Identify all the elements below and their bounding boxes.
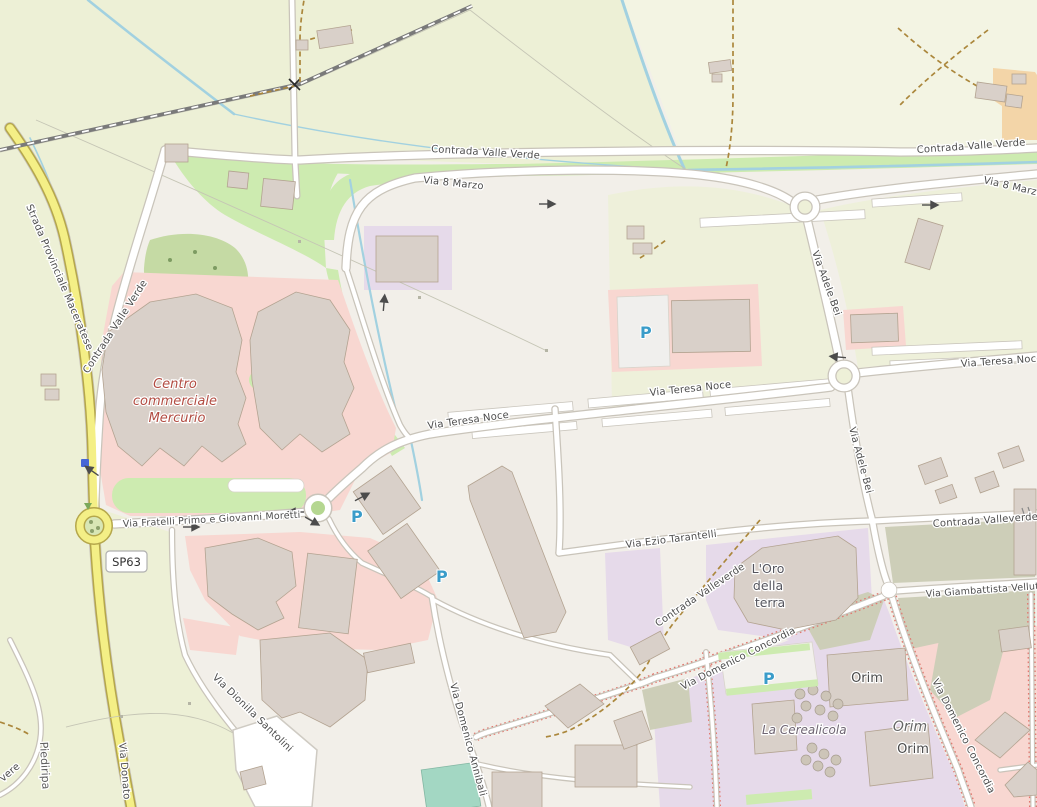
parking-icon: P [640,323,652,342]
place-label-piediripa: Piediripa [37,741,52,789]
area-label-loro-della-terra: L'Oro della terra [752,561,789,610]
parking-icon: P [763,669,775,688]
parking-icon: P [351,507,363,526]
area-label-orim-1: Orim [851,671,883,686]
loro-line-2: della [753,578,783,593]
area-label-orim-3: Orim [897,742,929,757]
area-label-la-cerealicola: La Cerealicola [762,723,847,737]
loro-line-3: terra [755,595,785,610]
mercurio-line-3: Mercurio [149,411,206,426]
road-ref-badge: SP63 [106,551,147,572]
mercurio-line-1: Centro [153,377,197,392]
loro-line-1: L'Oro [752,561,785,576]
road-ref-sp63: SP63 [112,555,141,569]
mercurio-line-2: commerciale [133,394,217,409]
map-viewport[interactable]: Strada Provinciale Maceratese Contrada V… [0,0,1037,807]
parking-icon: P [436,567,448,586]
area-label-orim-2: Orim [893,719,927,735]
map-canvas[interactable]: Strada Provinciale Maceratese Contrada V… [0,0,1037,807]
